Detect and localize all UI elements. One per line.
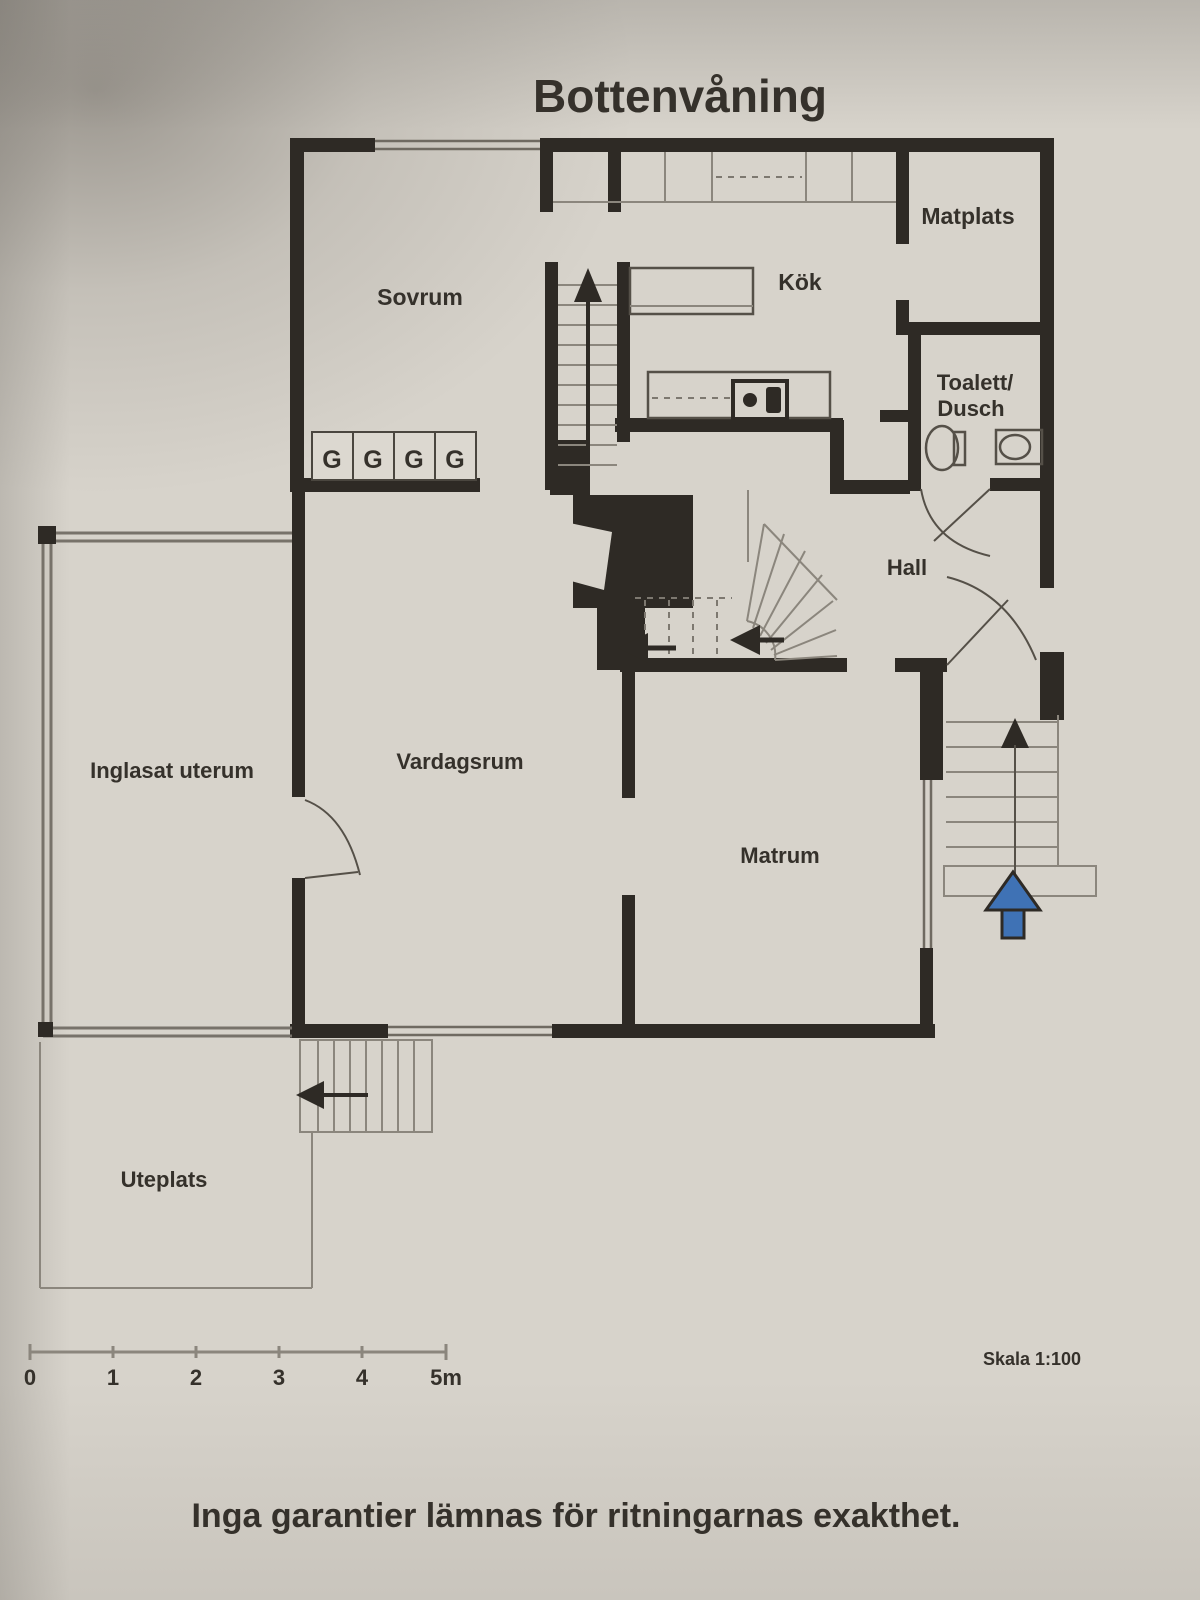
room-label-toalett-2: Dusch <box>937 396 1004 421</box>
room-label-toalett-1: Toalett/ <box>937 370 1014 395</box>
scale-tick-5: 5m <box>430 1365 462 1390</box>
wardrobe-label: G <box>404 446 423 474</box>
room-label-matrum: Matrum <box>740 843 819 868</box>
room-label-uteplats: Uteplats <box>121 1167 208 1192</box>
photo-shadow-left <box>0 0 70 1600</box>
wardrobe-label: G <box>363 446 382 474</box>
scale-tick-1: 1 <box>107 1365 119 1390</box>
room-label-hall: Hall <box>887 555 927 580</box>
disclaimer-text: Inga garantier lämnas för ritningarnas e… <box>191 1497 960 1535</box>
wardrobes: G G G G <box>312 432 476 480</box>
room-label-matplats: Matplats <box>921 203 1014 229</box>
corner-post <box>38 526 56 544</box>
scale-tick-2: 2 <box>190 1365 202 1390</box>
wardrobe-label: G <box>322 446 341 474</box>
room-label-inglasat-uterum: Inglasat uterum <box>90 758 254 783</box>
room-label-vardagsrum: Vardagsrum <box>396 749 523 774</box>
floorplan-drawing: Bottenvåning <box>0 0 1200 1600</box>
corner-post <box>38 1022 53 1037</box>
page-title: Bottenvåning <box>533 70 827 122</box>
room-label-sovrum: Sovrum <box>377 284 463 310</box>
photo-shadow-bottom <box>0 1380 1200 1600</box>
floorplan-page: Bottenvåning <box>0 0 1200 1600</box>
open-door-leaf <box>560 522 612 590</box>
scale-tick-0: 0 <box>24 1365 36 1390</box>
scale-ratio-label: Skala 1:100 <box>983 1349 1081 1369</box>
scale-tick-4: 4 <box>356 1365 369 1390</box>
wardrobe-label: G <box>445 446 464 474</box>
scale-tick-3: 3 <box>273 1365 285 1390</box>
room-label-kok: Kök <box>778 269 822 295</box>
